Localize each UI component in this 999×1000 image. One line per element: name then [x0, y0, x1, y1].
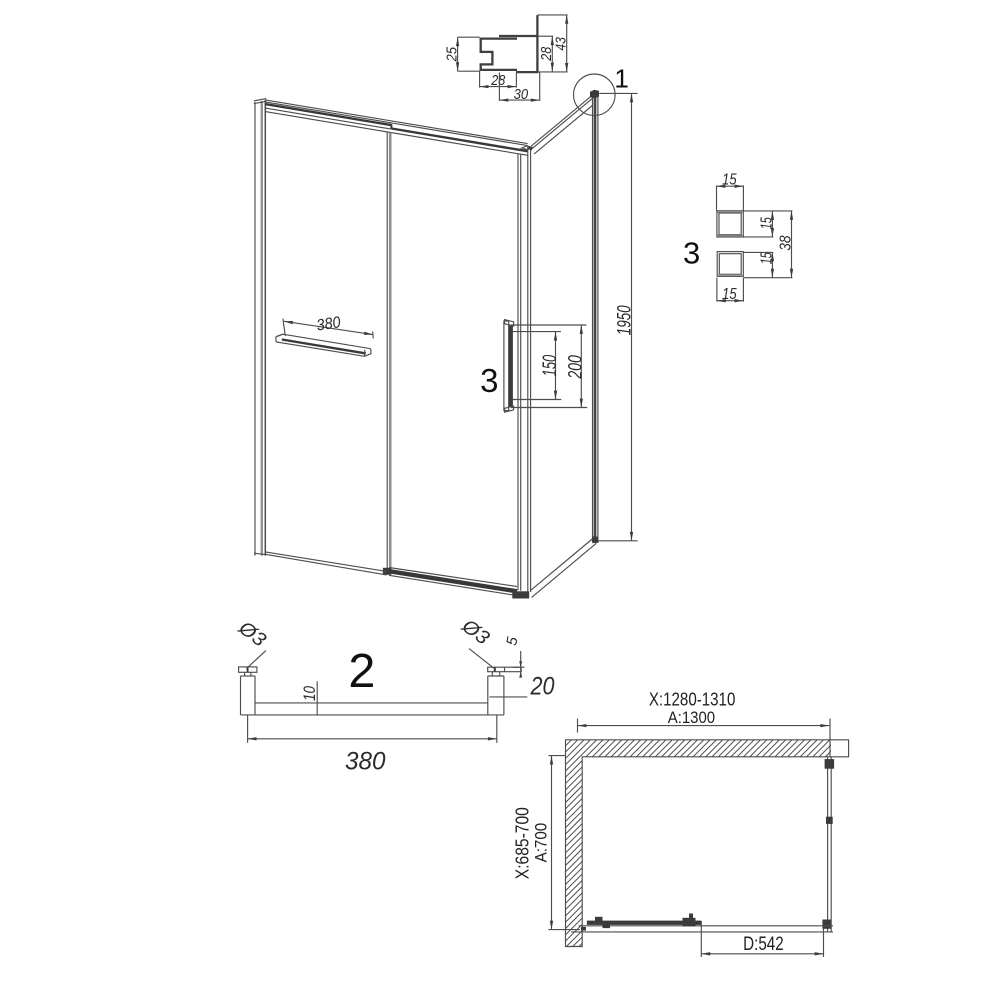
svg-text:28: 28 [538, 46, 555, 61]
svg-text:D:542: D:542 [743, 934, 784, 955]
svg-text:380: 380 [345, 748, 386, 776]
svg-text:1: 1 [614, 64, 628, 94]
svg-text:30: 30 [514, 86, 529, 103]
svg-text:A:1300: A:1300 [668, 708, 715, 727]
svg-text:2: 2 [348, 644, 375, 698]
svg-text:15: 15 [722, 286, 737, 303]
svg-text:28: 28 [490, 72, 505, 89]
svg-text:10: 10 [300, 686, 319, 701]
svg-text:200: 200 [566, 355, 587, 380]
svg-text:3: 3 [683, 235, 700, 270]
svg-text:38: 38 [778, 235, 795, 250]
svg-text:15: 15 [759, 217, 776, 229]
svg-text:15: 15 [759, 252, 776, 264]
svg-text:1950: 1950 [614, 305, 635, 335]
svg-text:20: 20 [530, 672, 555, 700]
svg-text:X:1280-1310: X:1280-1310 [649, 688, 736, 709]
svg-text:15: 15 [722, 171, 737, 188]
svg-text:X:685-700: X:685-700 [511, 807, 532, 879]
svg-text:3: 3 [480, 362, 498, 399]
svg-text:A:700: A:700 [531, 823, 550, 863]
svg-text:150: 150 [540, 355, 561, 377]
svg-text:380: 380 [316, 314, 342, 334]
svg-text:25: 25 [443, 46, 460, 62]
